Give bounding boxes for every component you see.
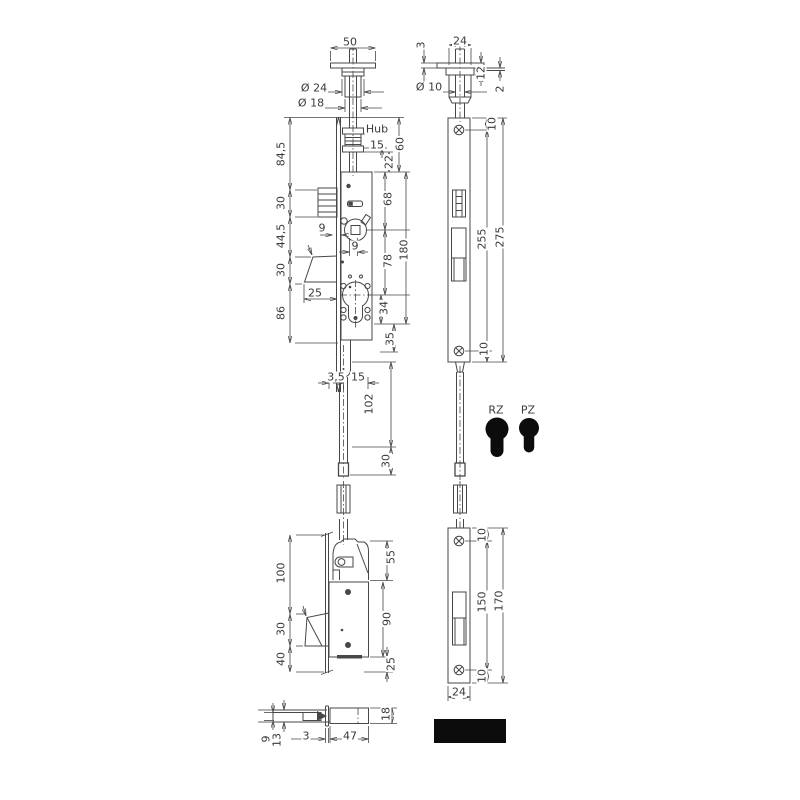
dim-label: 15: [350, 372, 366, 383]
dim-label: 3: [416, 41, 427, 50]
dim-label: 10: [479, 341, 490, 357]
dim-label: 255: [477, 228, 488, 251]
dim-label: Ø 10: [415, 82, 443, 93]
dim-label: 90: [382, 611, 393, 627]
dim-label: 68: [383, 191, 394, 207]
cylinder-option-pz-label: PZ: [520, 405, 536, 416]
dim-label: 275: [495, 226, 506, 249]
dim-label: 25: [386, 656, 397, 672]
dim-label: 3: [302, 731, 311, 742]
dim-label: 30: [276, 195, 287, 211]
dim-label: 84,5: [276, 141, 287, 168]
dim-label: 15: [369, 140, 385, 151]
dim-label: 35: [385, 331, 396, 347]
dim-label: 12: [476, 65, 487, 81]
dim-label: 13: [272, 732, 283, 748]
dim-label: 50: [342, 37, 358, 48]
dim-label: 2: [495, 85, 506, 94]
dim-label: 30: [276, 621, 287, 637]
dim-label: 30: [276, 262, 287, 278]
dim-label: Hub: [365, 124, 389, 135]
dim-label: 22: [384, 154, 395, 170]
cylinder-option-rz-label: RZ: [487, 405, 504, 416]
dim-label: 10: [487, 116, 498, 132]
dim-label: 40: [276, 651, 287, 667]
dim-label: 30: [381, 453, 392, 469]
dim-label: 150: [477, 591, 488, 614]
dim-label: Ø 24: [300, 83, 328, 94]
dim-label: 44,5: [276, 223, 287, 250]
dim-label: 9: [351, 241, 360, 252]
dim-label: 10: [477, 668, 488, 684]
dim-label: 47: [342, 731, 358, 742]
dim-label: 60: [395, 136, 406, 152]
dimension-labels-layer: 50Ø 24Ø 18Hub15602284,53044,530869925681…: [0, 0, 800, 800]
dim-label: 24: [451, 687, 467, 698]
dim-label: Ø 18: [297, 98, 325, 109]
dim-label: 9: [318, 223, 327, 234]
technical-drawing-page: 50Ø 24Ø 18Hub15602284,53044,530869925681…: [0, 0, 800, 800]
dim-label: 86: [276, 305, 287, 321]
dim-label: 25: [307, 288, 323, 299]
dim-label: 18: [381, 706, 392, 722]
dim-label: 24: [452, 36, 468, 47]
dim-label: 55: [386, 549, 397, 565]
dim-label: 170: [494, 590, 505, 613]
dim-label: 78: [383, 253, 394, 269]
dim-label: 34: [379, 300, 390, 316]
dim-label: 3,5: [326, 372, 346, 383]
dim-label: 10: [477, 527, 488, 543]
dim-label: 100: [276, 562, 287, 585]
dim-label: 102: [364, 393, 375, 416]
dim-label: 180: [399, 239, 410, 262]
